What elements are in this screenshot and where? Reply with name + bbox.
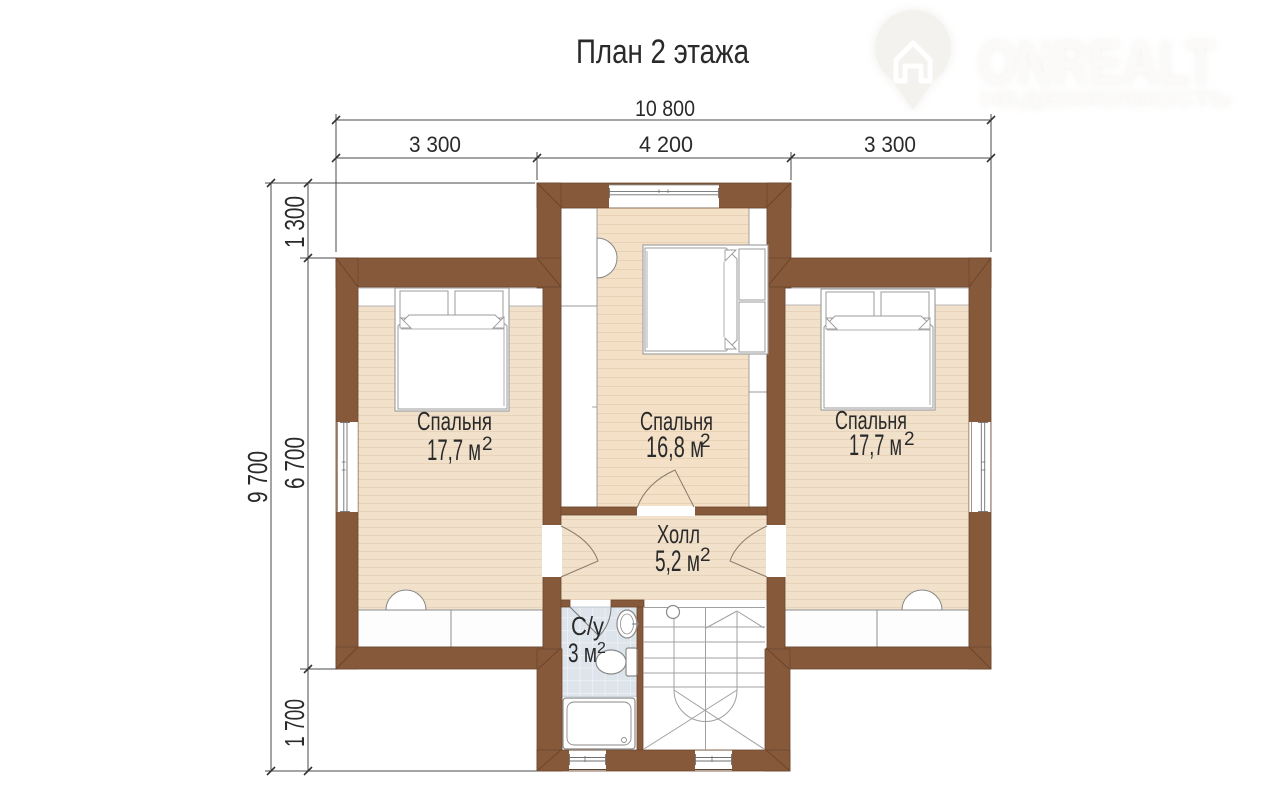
svg-text:9 700: 9 700 <box>242 451 273 503</box>
svg-text:2: 2 <box>700 431 711 452</box>
svg-text:2: 2 <box>597 640 606 657</box>
svg-text:План 2 этажа: План 2 этажа <box>576 33 749 71</box>
svg-text:Спальня: Спальня <box>417 406 492 436</box>
svg-text:5,2 м: 5,2 м <box>655 545 700 578</box>
svg-text:3 300: 3 300 <box>864 132 916 157</box>
svg-text:1 700: 1 700 <box>279 699 310 747</box>
svg-text:1 300: 1 300 <box>279 196 310 248</box>
svg-text:НЕДВИЖИМОСТЬ: НЕДВИЖИМОСТЬ <box>980 88 1232 111</box>
svg-text:3 300: 3 300 <box>409 132 461 157</box>
svg-text:3 м: 3 м <box>568 638 597 668</box>
svg-text:2: 2 <box>700 545 711 566</box>
svg-text:6 700: 6 700 <box>279 437 310 489</box>
svg-text:17,7 м: 17,7 м <box>849 429 902 462</box>
svg-text:2: 2 <box>482 434 493 455</box>
svg-text:10 800: 10 800 <box>635 96 695 121</box>
svg-text:16,8 м: 16,8 м <box>646 431 704 464</box>
svg-text:17,7 м: 17,7 м <box>427 434 481 467</box>
svg-text:С/у: С/у <box>571 611 604 641</box>
svg-text:4 200: 4 200 <box>639 132 693 157</box>
svg-text:2: 2 <box>904 429 915 450</box>
